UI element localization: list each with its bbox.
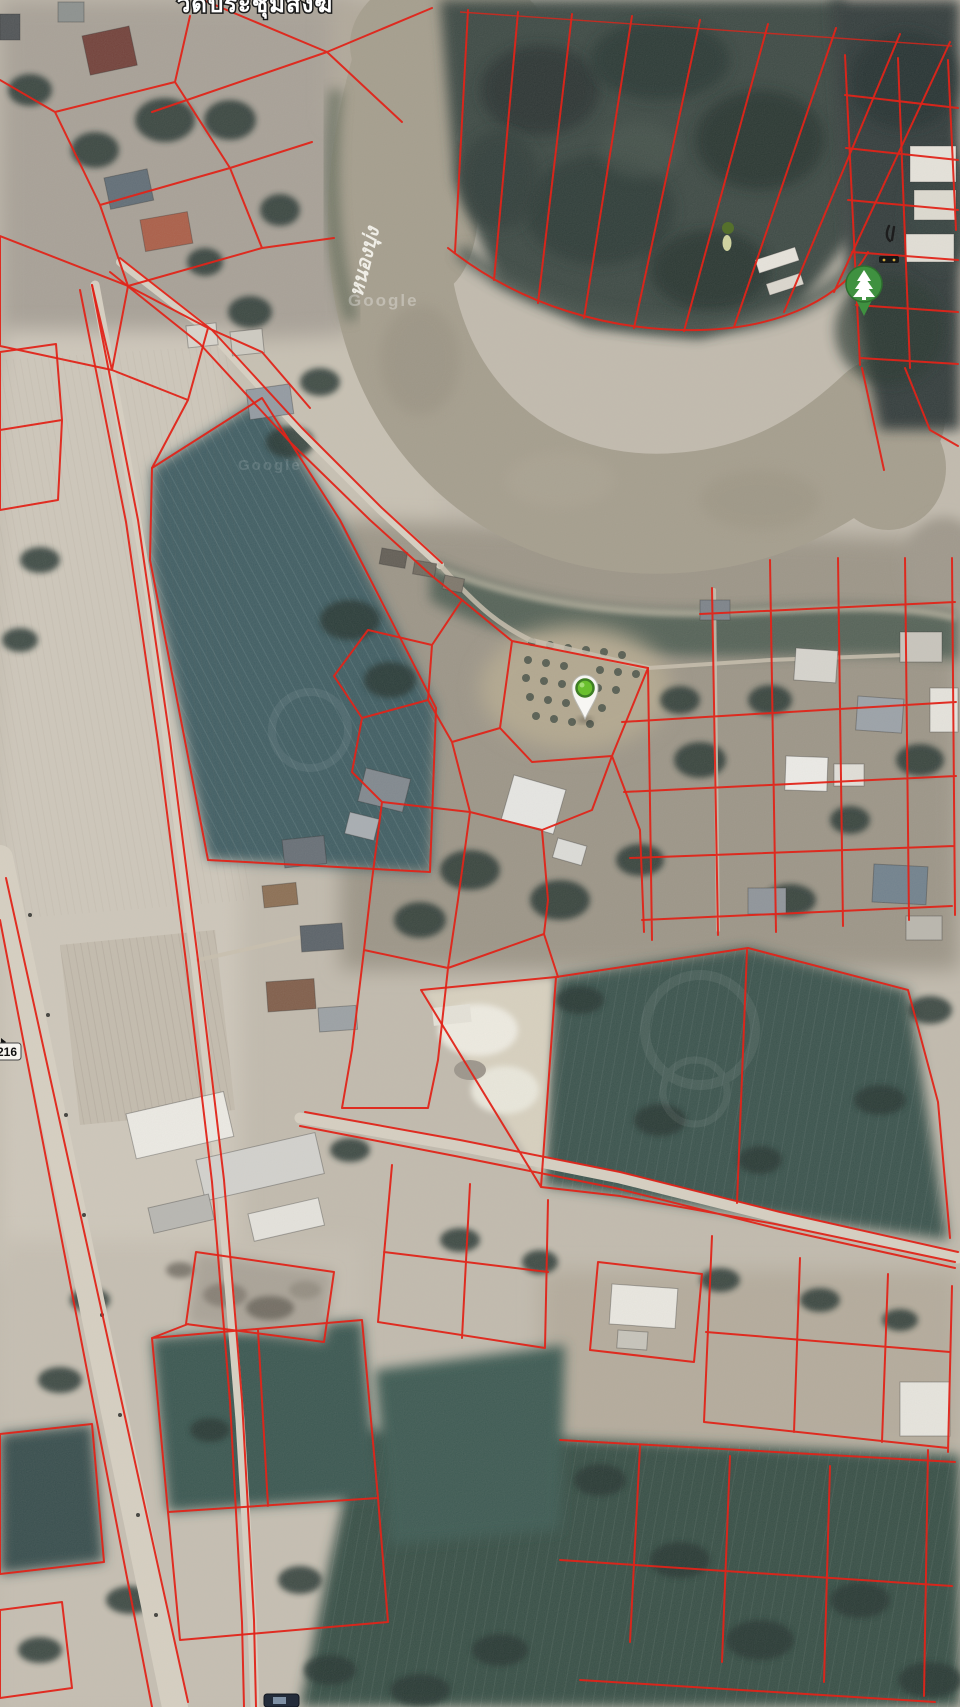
temple-label: วัดประชุมสงฆ์	[177, 0, 333, 20]
map-viewport[interactable]: วัดประชุมสงฆ์ หนองบุ่ง Google Google 216	[0, 0, 960, 1707]
google-watermark: Google	[348, 291, 419, 310]
vehicle-icon	[879, 256, 899, 263]
route-number: 216	[0, 1045, 17, 1059]
google-watermark-faint: Google	[238, 457, 302, 474]
imagery-noise	[0, 0, 960, 1707]
terrain-layer	[0, 0, 960, 1707]
partial-bottom-element	[264, 1694, 299, 1707]
satellite-map[interactable]: วัดประชุมสงฆ์ หนองบุ่ง Google Google 216	[0, 0, 960, 1707]
